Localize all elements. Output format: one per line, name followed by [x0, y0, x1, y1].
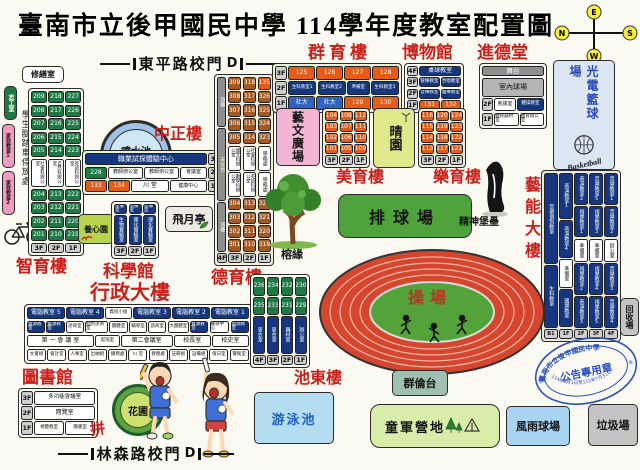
gate-south: 林森路校門 D — [58, 443, 234, 464]
red-doodle-icon — [81, 234, 93, 242]
room-cell: 123 — [450, 122, 463, 132]
room-cell: 106 — [340, 133, 353, 143]
compass-icon: E N S W — [548, 2, 640, 64]
deyu-col-2f: 318317316315314社會科辦公室英語科辦公室313312311310 — [243, 77, 256, 252]
room-cell: 準備室 — [143, 204, 156, 214]
room-cell: 3F — [267, 355, 280, 365]
room-cell: 105 — [340, 144, 353, 154]
room-cell: 317 — [243, 91, 256, 104]
room-cell: 225 — [65, 118, 81, 130]
room-cell: 110 — [354, 133, 367, 143]
room-cell: 1F — [482, 113, 493, 126]
leaf-icon — [198, 220, 210, 230]
room-cell: 4F — [217, 253, 227, 263]
yiwen-plaza-label: 藝文廣場 — [290, 111, 307, 163]
swimming-pool-label: 游泳池 — [271, 409, 316, 428]
banyan-tree-illustration — [262, 170, 324, 250]
room-cell: 3F — [114, 246, 127, 256]
room-cell: 114 — [421, 133, 434, 143]
swimming-pool: 游泳池 — [254, 392, 334, 444]
room-cell: 109 — [354, 144, 367, 154]
room-cell: 2F — [281, 355, 294, 365]
meiyu-title: 美育樓 — [336, 170, 384, 186]
room-cell: 音樂教室3 — [604, 263, 618, 295]
yineng-col-3f: 音樂教室5視覺教室3準備室視覺教室4視覺教室5 — [589, 173, 603, 328]
room-cell: 1F — [450, 155, 463, 165]
room-cell: 音樂教室4 — [604, 296, 618, 328]
room-cell: 會議室 — [180, 167, 207, 179]
qunyu-row-2f: 2F生科教室1生科教室2準備室生科教室3 — [275, 81, 399, 95]
room-cell: 212 — [48, 202, 64, 214]
room-cell: 209 — [31, 91, 47, 103]
room-cell: 117 — [436, 144, 449, 154]
room-cell: 315 — [243, 118, 256, 131]
room-cell: 3F — [228, 253, 241, 263]
zhongzheng-row-2f: 228教師辦公室教師辦公室會議室2F — [85, 167, 222, 179]
yineng-col-2f: 表演教室2視覺教室1準備室視覺教室2表演教室3 — [574, 173, 588, 328]
zhiyu-building: 209208207206205社會科辦公室204203202201 218217… — [28, 88, 84, 256]
room-cell: 205 — [31, 145, 47, 157]
room-cell: 307 — [228, 104, 241, 117]
room-cell: 多功能會議室 — [34, 391, 95, 405]
room-cell: 器材室 — [281, 316, 293, 353]
room-cell: 2F — [435, 155, 448, 165]
room-cell: 2F — [48, 243, 64, 253]
room-cell: 1F — [294, 355, 307, 365]
room-cell: 視覺教室4 — [589, 263, 603, 295]
room-cell: 1F — [143, 246, 156, 256]
room-cell: 133 — [85, 180, 107, 192]
science-col-2f: 準備室理化實驗室 — [129, 204, 142, 245]
science-floor-tags: 3F2F1F — [114, 246, 156, 256]
room-cell: 124 — [450, 111, 463, 121]
zhiyu-title: 智育樓 — [16, 258, 67, 275]
chidong-floor-tags: 4F3F2F1F — [253, 355, 307, 365]
room-cell: 準備室 — [574, 239, 588, 262]
room-cell: 231 — [281, 297, 293, 316]
qingyuan-label: 晴園 — [385, 125, 404, 151]
page-title: 臺南市立後甲國民中學 114學年度教室配置圖 — [0, 6, 572, 42]
meiyu-col-3f: 104103102101 — [325, 111, 338, 154]
qunyu-title: 群育樓 — [308, 44, 371, 61]
room-cell: 大團體室 — [168, 321, 189, 333]
svg-text:E: E — [591, 8, 596, 17]
zhongzheng-building: 職業試探體驗中心3F 228教師辦公室教師辦公室會議室2F 133134川 堂健… — [82, 150, 225, 195]
zhongzheng-row-1f: 133134川 堂健康中心1F — [85, 180, 222, 192]
room-cell: 206 — [31, 132, 47, 144]
pinwheel-icon — [400, 111, 412, 123]
room-cell: 英語科辦公室 — [243, 172, 256, 197]
qingyuan-garden: 晴園 — [373, 108, 415, 168]
room-cell: 221 — [65, 202, 81, 214]
room-cell: 川 堂 — [131, 180, 168, 192]
room-cell: 健康中心 — [170, 180, 207, 192]
yineng-col-b1: 音樂個別教室生科教室 — [544, 173, 558, 328]
yineng-col-1f: 表演教室1表演教室4準備室國樂教室 — [559, 173, 573, 328]
room-cell: 社會科辦公室 — [31, 159, 47, 188]
spirit-monument-illustration — [476, 158, 514, 218]
room-cell: 215 — [48, 132, 64, 144]
room-cell: 230 — [295, 277, 307, 296]
room-cell: 236 — [253, 277, 265, 296]
room-cell: 視覺教室2 — [574, 263, 588, 295]
room-cell: 生科教室 — [544, 265, 558, 327]
room-cell: 準備室 — [114, 204, 127, 214]
room-cell: 視聽教室 — [34, 421, 64, 435]
room-cell: 文書組 — [27, 349, 46, 361]
room-cell: 216 — [48, 118, 64, 130]
room-cell: 團體室 — [109, 321, 127, 333]
room-cell: 資訊小組 — [105, 307, 132, 319]
room-cell: 會計室 — [47, 349, 66, 361]
room-cell: 118 — [436, 133, 449, 143]
room-cell: 3F — [421, 155, 434, 165]
room-cell: 職業試探體驗中心 — [85, 153, 207, 165]
room-cell: 323 — [258, 132, 271, 145]
leyu-col-1f: 124123122121 — [450, 111, 463, 154]
room-cell: 213 — [48, 189, 64, 201]
library-row-3f: 3F多功能會議室 — [21, 391, 95, 405]
room-cell: 2F — [339, 155, 352, 165]
room-cell: 音樂教室5 — [589, 173, 603, 205]
deyu-col-3f: 309308307306305國文科辦公室數學科辦公室304303302301 — [228, 77, 241, 252]
room-cell: 1F — [354, 155, 367, 165]
basketball-icon — [567, 133, 601, 160]
room-cell: 233 — [267, 297, 279, 316]
museum-row-4f: 4F桌球教室 — [407, 66, 461, 76]
room-cell: 理化實驗室 — [129, 215, 142, 244]
indoor-court: 室內球場 — [482, 78, 544, 97]
trash-yard: 垃圾場 — [588, 404, 638, 446]
repair-room: 修繕室 — [22, 66, 64, 83]
room-cell: 生物實驗室 — [114, 215, 127, 244]
room-cell: 309 — [228, 77, 241, 90]
room-cell: 會議室 — [494, 98, 515, 111]
room-cell: 3F — [21, 391, 33, 405]
svg-text:S: S — [627, 29, 633, 38]
spirit-monument-label: 精神堡壘 — [459, 218, 499, 228]
qunlun-stage: 群倫台 — [392, 370, 448, 396]
track-field — [318, 248, 546, 376]
room-cell: 202 — [31, 216, 47, 228]
room-cell: 308 — [228, 91, 241, 104]
room-cell: 135 — [258, 77, 271, 90]
museum-building: 4F桌球教室 3F管樂教室合唱教室 2F音樂教室國樂教室 1F131132 — [404, 63, 464, 113]
gate-east: 東平路校門 D — [100, 53, 276, 74]
room-cell: 2F — [407, 89, 418, 99]
room-cell: 305 — [228, 132, 241, 145]
museum-row-2f: 2F音樂教室國樂教室 — [407, 89, 461, 99]
room-cell: 人事室 — [68, 349, 87, 361]
leyu-title: 樂育樓 — [433, 170, 481, 186]
room-cell: 210 — [48, 229, 64, 241]
room-cell: 211 — [48, 216, 64, 228]
room-cell: 312 — [243, 212, 256, 225]
room-cell: 視覺教室5 — [589, 296, 603, 328]
room-cell: 107 — [340, 122, 353, 132]
room-cell: 325 — [258, 104, 271, 117]
deyu-floor-tags: 4F3F2F1F — [217, 253, 271, 263]
scout-camp: 童軍營地 — [370, 404, 500, 448]
library-row-2f: 2F閱覽室 — [21, 406, 95, 420]
room-cell: 204 — [31, 189, 47, 201]
room-cell: 1F — [21, 421, 33, 435]
room-cell: 313 — [243, 198, 256, 211]
volleyball-court: 排球場 — [338, 194, 472, 238]
stage: 舞台 — [482, 66, 544, 76]
chidong-col-2f: 232231器材室 — [281, 277, 293, 354]
room-cell: 電腦教室 2 — [172, 307, 210, 319]
room-cell: 1F — [258, 253, 271, 263]
room-cell: 2F — [21, 406, 33, 420]
room-cell: 208 — [31, 105, 47, 117]
room-cell: 120 — [436, 111, 449, 121]
room-cell: 304 — [228, 198, 241, 211]
room-cell: 資源教室 — [27, 321, 45, 333]
jinde-row-1f: 1F體育器材室體育辦公室 — [482, 113, 544, 126]
room-cell: 207 — [31, 118, 47, 130]
room-cell: 電腦教室 5 — [27, 307, 65, 319]
banyan-label: 榕緣 — [281, 249, 303, 260]
room-cell: 合唱教室 — [441, 77, 461, 87]
admin-row-4f: 電腦教室 5電腦教室 4資訊小組電腦教室 3電腦教室 2電腦教室 14F — [27, 307, 263, 319]
room-cell: 出納組 — [88, 349, 107, 361]
museum-row-3f: 3F管樂教室合唱教室 — [407, 77, 461, 87]
qunyu-row-3f: 3F125126127128 — [275, 66, 399, 80]
museum-title: 博物館 — [402, 44, 453, 61]
room-cell: 電腦教室 3 — [133, 307, 171, 319]
room-cell: 音樂教室 — [419, 89, 439, 99]
room-cell: 英語科辦公室 — [65, 159, 81, 188]
room-cell: 更衣室 — [267, 316, 279, 353]
chidong-col-4f: 236235更衣室 — [253, 277, 265, 354]
room-cell: 校史室 — [212, 335, 249, 347]
campus-map: 臺南市立後甲國民中學 114學年度教室配置圖 E N S W 東平路校門 D 修… — [0, 0, 640, 470]
feiyue-pavilion: 飛月亭 — [165, 206, 213, 232]
science-title: 科學館 — [103, 263, 154, 280]
science-col-1f: 準備室理化實驗室 — [143, 204, 156, 245]
room-cell: 電腦教室 4 — [66, 307, 104, 319]
room-cell: 視覺教室3 — [589, 206, 603, 238]
room-cell: 社會科辦公室 — [243, 146, 256, 171]
room-cell: 113 — [421, 144, 434, 154]
room-cell: 103 — [325, 122, 338, 132]
room-cell: 輔導中心 — [210, 321, 230, 333]
room-cell: 視覺教室1 — [574, 206, 588, 238]
chidong-col-1f: 230229辦公室 — [295, 277, 307, 354]
meiyu-col-2f: 108107106105 — [340, 111, 353, 154]
room-cell: 122 — [450, 133, 463, 143]
room-cell: 國文科辦公室 — [228, 146, 241, 171]
room-cell: 326 — [258, 91, 271, 104]
leyu-col-3f: 116115114113 — [421, 111, 434, 154]
room-cell: 324 — [258, 118, 271, 131]
room-cell: 閱覽室 — [34, 406, 95, 420]
yangxin-label: 養心園 — [84, 224, 108, 235]
volleyball-court-label: 排球場 — [369, 204, 441, 228]
room-cell: 3F — [275, 66, 287, 80]
yangxin-garden: 養心園 — [78, 214, 114, 244]
chidong-col-3f: 234233更衣室 — [267, 277, 279, 354]
room-cell: 226 — [65, 105, 81, 117]
scout-camp-label: 童軍營地 — [385, 417, 445, 436]
room-cell: 2F — [275, 81, 287, 95]
room-cell: 2F — [482, 98, 493, 111]
room-cell: 表演教室2 — [574, 173, 588, 205]
yineng-building: 音樂個別教室生科教室 表演教室1表演教室4準備室國樂教室 表演教室2視覺教室1準… — [541, 170, 621, 342]
room-cell: 資源教室 — [231, 321, 249, 333]
room-cell: 134 — [108, 180, 130, 192]
room-cell: 228 — [85, 167, 107, 179]
leyu-col-2f: 120119118117 — [436, 111, 449, 154]
room-cell: 301 — [228, 239, 241, 252]
room-cell: 223 — [65, 145, 81, 157]
photon-court-label: 光電籃球場 — [567, 65, 601, 133]
room-cell: 學務處 — [258, 146, 271, 171]
room-cell: 218 — [48, 91, 64, 103]
room-cell: 232 — [281, 277, 293, 296]
room-cell: 教師辦公室 — [108, 167, 143, 179]
room-cell: 310 — [243, 239, 256, 252]
room-cell: 112 — [354, 111, 367, 121]
home-ec-room-2: 家政教室2 — [2, 171, 15, 215]
room-cell: 121 — [450, 144, 463, 154]
room-cell: 校長室 — [174, 335, 211, 347]
room-cell: 227 — [65, 91, 81, 103]
science-col-3f: 準備室生物實驗室 — [114, 204, 127, 245]
jinde-title: 進德堂 — [477, 44, 528, 61]
room-cell: 302 — [228, 225, 241, 238]
track-label: 操場 — [408, 284, 452, 308]
deyu-roof-col: 頂樓天文台頂樓 — [217, 77, 226, 252]
room-cell: 126 — [316, 66, 343, 80]
room-cell: 諮商室 — [66, 321, 84, 333]
admin-row-3f: 資源教室資源教室諮商室個別諮商室團體室輔導室諮商室大團體室資源教室輔導中心資源教… — [27, 321, 263, 333]
zhongzheng-row-3f: 職業試探體驗中心3F — [85, 153, 222, 165]
room-cell: 222 — [65, 189, 81, 201]
room-cell: 116 — [421, 111, 434, 121]
room-cell: 1F — [65, 243, 81, 253]
svg-text:N: N — [559, 29, 566, 38]
room-cell: 127 — [344, 66, 371, 80]
room-cell: 自然科辦公室 — [48, 159, 64, 188]
room-cell: 準備室 — [559, 259, 573, 287]
room-cell: 3F — [407, 77, 418, 87]
room-cell: 資源教室 — [190, 321, 208, 333]
room-cell: 表演教室4 — [559, 220, 573, 259]
room-cell: 諮商室 — [148, 321, 166, 333]
room-cell: 3F — [31, 243, 47, 253]
room-cell: 125 — [288, 66, 315, 80]
room-cell: 224 — [65, 132, 81, 144]
room-cell: 229 — [295, 297, 307, 316]
room-cell: 2F — [243, 253, 256, 263]
zhiyu-col-3f: 209208207206205社會科辦公室204203202201 — [31, 91, 47, 242]
room-cell: 表演教室3 — [574, 296, 588, 328]
meiyu-col-1f: 112111110109 — [354, 111, 367, 154]
room-cell: 盥洗室 — [95, 335, 119, 347]
yineng-col-4f: 音樂教室1音樂教室2辦公室音樂教室3音樂教室4 — [604, 173, 618, 328]
room-cell: 生科教室2 — [318, 81, 346, 95]
room-cell: 準備室 — [589, 239, 603, 262]
room-cell: 3F — [325, 155, 338, 165]
room-cell: 4F — [253, 355, 266, 365]
room-cell: 體育辦公室 — [520, 113, 544, 126]
qunyu-building: 3F125126127128 2F生科教室1生科教室2準備室生科教室3 1F社大… — [272, 63, 402, 113]
room-cell: 2F — [128, 246, 141, 256]
room-cell: 生科教室3 — [371, 81, 399, 95]
room-cell: 音樂個別教室 — [544, 173, 558, 264]
camp-icons — [445, 415, 485, 437]
chidong-building: 236235更衣室 234233更衣室 232231器材室 230229辦公室 … — [250, 274, 310, 368]
room-cell: 頂樓 — [217, 77, 226, 127]
room-cell: 214 — [48, 145, 64, 157]
room-cell: 音樂教室1 — [604, 173, 618, 205]
room-cell: 234 — [267, 277, 279, 296]
room-cell: 119 — [436, 122, 449, 132]
room-cell: 桌球教室 — [419, 66, 461, 76]
room-cell: 第 一 會 議 室 — [27, 335, 94, 347]
room-cell: 217 — [48, 105, 64, 117]
room-cell: 128 — [372, 66, 399, 80]
room-cell: B1 — [544, 329, 558, 339]
admin-title: 行政大樓 — [90, 283, 170, 303]
room-cell: 115 — [421, 122, 434, 132]
room-cell: 303 — [228, 212, 241, 225]
room-cell: 101 — [325, 144, 338, 154]
room-cell: 數學科辦公室 — [228, 172, 241, 197]
meiyu-building: 104103102101 108107106105 112111110109 3… — [322, 108, 370, 168]
jinde-hall: 舞台 室內球場 2F會議室體操教室 1F體育器材室體育辦公室 — [479, 63, 547, 129]
room-cell: 個別諮商室 — [85, 321, 108, 333]
room-cell: 資源教室 — [46, 321, 64, 333]
room-cell: 輔導室 — [129, 321, 147, 333]
room-cell: 111 — [354, 122, 367, 132]
leyu-building: 116115114113 120119118117 124123122121 3… — [418, 108, 466, 168]
library-row-1f: 1F視聽教室圖書室 — [21, 421, 95, 435]
home-ec-room-1: 家政教室1 — [2, 124, 15, 168]
room-cell: 音樂教室2 — [604, 206, 618, 238]
room-cell: 4F — [407, 66, 418, 76]
room-cell: 316 — [243, 104, 256, 117]
zhongzheng-title: 中正樓 — [154, 127, 202, 143]
room-cell: 總務處 — [108, 349, 127, 361]
room-cell: 管樂教室 — [419, 77, 439, 87]
room-cell: 辦公室 — [604, 239, 618, 262]
room-cell: 235 — [253, 297, 265, 316]
room-cell: 天文台 — [217, 128, 226, 201]
room-cell: 準備室 — [347, 81, 370, 95]
room-cell: 104 — [325, 111, 338, 121]
room-cell: 表演教室1 — [559, 173, 573, 219]
room-cell: 頂樓 — [217, 202, 226, 252]
room-cell: 102 — [325, 133, 338, 143]
spirit-calligraphy: 拼 — [89, 417, 107, 440]
room-cell: 第二會議室 — [121, 335, 173, 347]
room-cell: 108 — [340, 111, 353, 121]
room-cell: 203 — [31, 202, 47, 214]
room-cell: 306 — [228, 118, 241, 131]
zhiyu-floor-tags: 3F2F1F — [31, 243, 81, 253]
room-cell: 生科教室1 — [288, 81, 316, 95]
admin-row-2f: 第 一 會 議 室盥洗室第二會議室校長室校史室2F — [27, 335, 263, 347]
volunteer-room: 志工室 — [4, 86, 17, 120]
room-cell: 體操教室 — [517, 98, 544, 111]
photon-basketball-court: 光電籃球場 Basketball — [553, 60, 615, 170]
room-cell: 314 — [243, 132, 256, 145]
yiwen-plaza: 藝文廣場 — [276, 108, 320, 166]
room-cell: 理化實驗室 — [143, 215, 156, 244]
